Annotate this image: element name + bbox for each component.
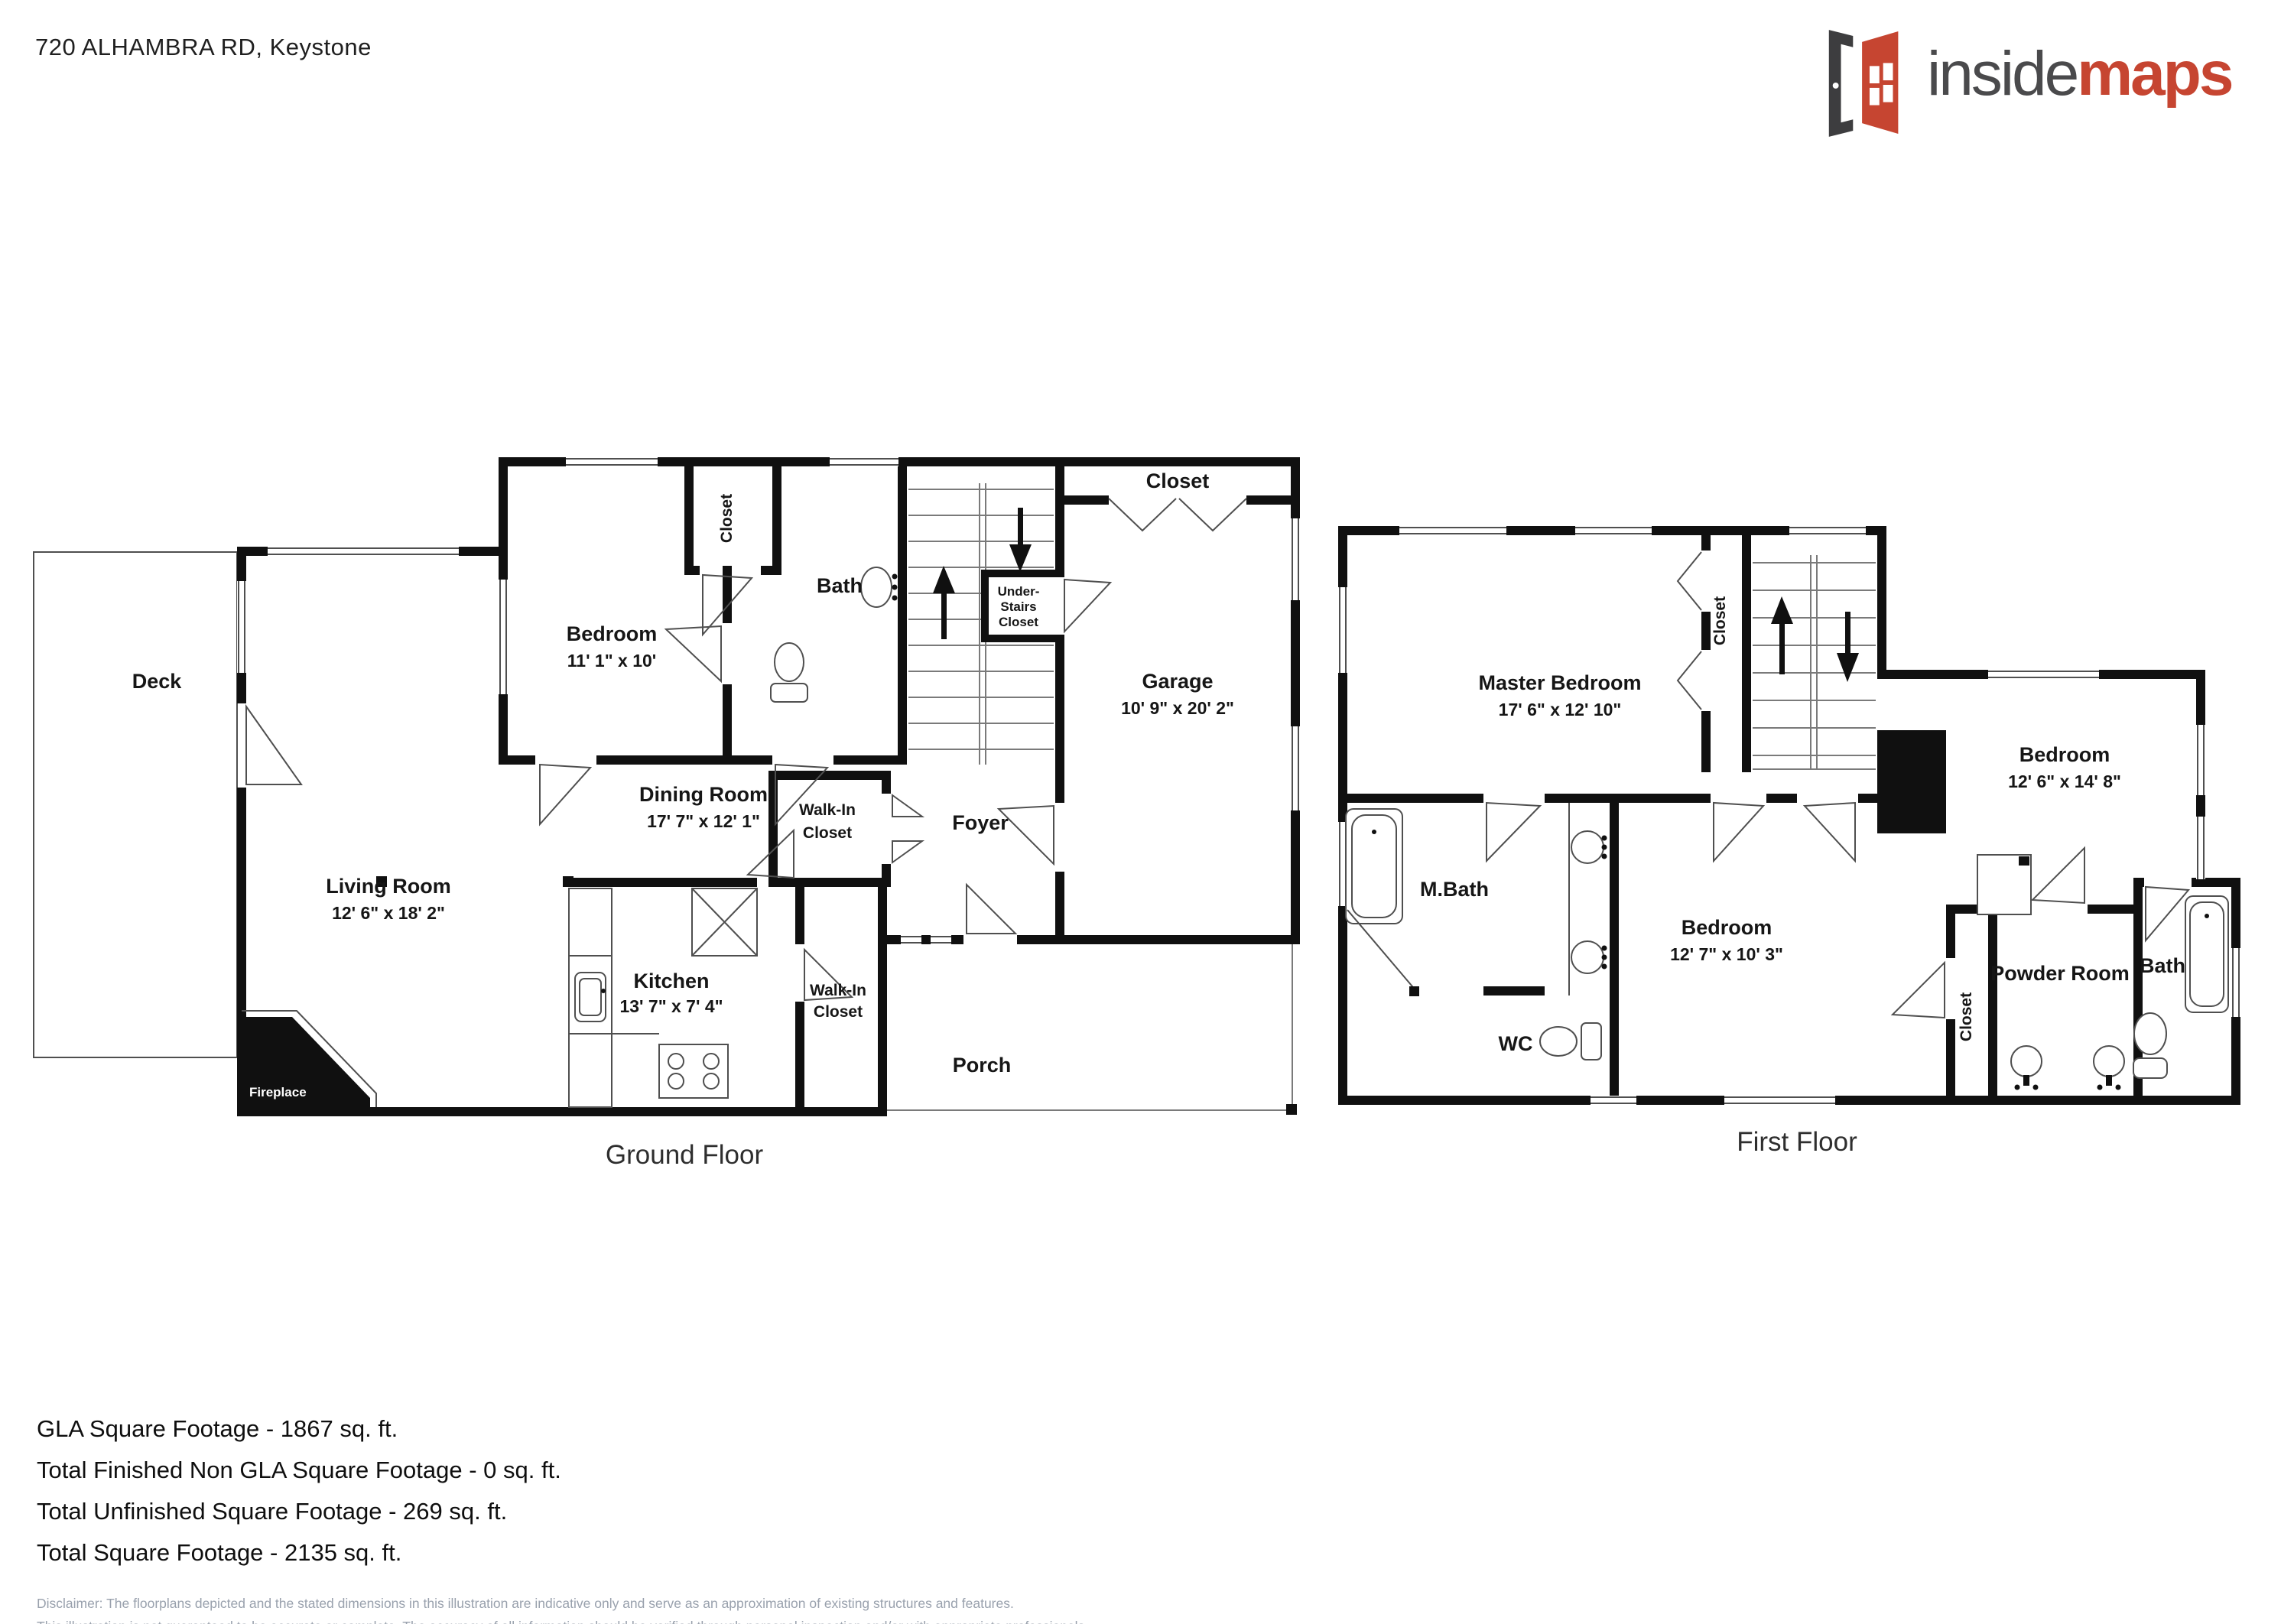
powder-room-label: Powder Room bbox=[1990, 962, 2130, 985]
stairs-up-arrow-first bbox=[1771, 596, 1793, 674]
closet-mid-label: Closet bbox=[1958, 992, 1975, 1041]
walk-in-closet-lower-line1: Walk-In bbox=[810, 982, 866, 999]
mbath-label: M.Bath bbox=[1420, 878, 1489, 901]
first-floor-plan: Master Bedroom 17' 6" x 12' 10" Closet B… bbox=[1331, 520, 2256, 1170]
disclaimer-line2: This illustration is not guaranteed to b… bbox=[37, 1615, 1088, 1624]
wc-toilet-icon bbox=[1540, 1023, 1601, 1060]
toilet-icon bbox=[771, 643, 807, 702]
dining-room-label: Dining Room bbox=[639, 783, 768, 806]
stairs-down-arrow-first bbox=[1837, 612, 1859, 682]
non-gla-square-footage: Total Finished Non GLA Square Footage - … bbox=[37, 1450, 561, 1491]
bath-sink-icon bbox=[861, 567, 898, 607]
bedroom-right-dims: 12' 6" x 14' 8" bbox=[2008, 771, 2121, 791]
mbath-vanity-sinks bbox=[1569, 803, 1607, 996]
bath-first-label: Bath bbox=[2140, 954, 2185, 977]
porch-label: Porch bbox=[953, 1054, 1012, 1077]
mbath-tub-icon bbox=[1346, 809, 1402, 924]
bedroom-right-label: Bedroom bbox=[2019, 743, 2110, 766]
walk-in-closet-lower-line2: Closet bbox=[814, 1003, 863, 1021]
deck-label: Deck bbox=[132, 670, 183, 693]
square-footage-summary: GLA Square Footage - 1867 sq. ft. Total … bbox=[37, 1408, 561, 1574]
powder-sinks-icon bbox=[2011, 1046, 2124, 1090]
logo-wordmark: insidemaps bbox=[1927, 43, 2231, 106]
linen-cabinet-icon bbox=[1977, 855, 2031, 914]
bedroom-label: Bedroom bbox=[567, 622, 658, 645]
ground-floor-plan: Deck Bedroom 11' 1" x 10' Closet Bath Un… bbox=[23, 447, 1323, 1200]
master-bedroom-dims: 17' 6" x 12' 10" bbox=[1499, 700, 1622, 719]
total-square-footage: Total Square Footage - 2135 sq. ft. bbox=[37, 1532, 561, 1574]
ground-floor-title: Ground Floor bbox=[606, 1140, 764, 1170]
kitchen-dims: 13' 7" x 7' 4" bbox=[619, 996, 723, 1016]
kitchen-label: Kitchen bbox=[633, 970, 709, 992]
garage-closet-label: Closet bbox=[1146, 469, 1210, 492]
bath-label: Bath bbox=[817, 574, 863, 597]
logo-inside-text: inside bbox=[1927, 39, 2077, 109]
living-room-label: Living Room bbox=[326, 875, 451, 898]
fireplace-label: Fireplace bbox=[249, 1085, 307, 1099]
bath-tub-icon bbox=[2185, 896, 2228, 1012]
living-room-dims: 12' 6" x 18' 2" bbox=[332, 903, 445, 923]
floorplan-page: 720 ALHAMBRA RD, Keystone insidemaps bbox=[0, 0, 2294, 1624]
bedroom-mid-label: Bedroom bbox=[1682, 916, 1772, 939]
master-bedroom-label: Master Bedroom bbox=[1478, 671, 1641, 694]
disclaimer: Disclaimer: The floorplans depicted and … bbox=[37, 1592, 1088, 1624]
gla-square-footage: GLA Square Footage - 1867 sq. ft. bbox=[37, 1408, 561, 1450]
ground-walls bbox=[237, 457, 1300, 1116]
bath-toilet-icon bbox=[2133, 1013, 2167, 1078]
pantry-cabinet-icon bbox=[692, 888, 757, 956]
door-icon bbox=[1818, 26, 1916, 141]
under-stairs-closet-line3: Closet bbox=[999, 615, 1038, 629]
porch-outline bbox=[887, 944, 1297, 1115]
insidemaps-logo: insidemaps bbox=[1818, 26, 2231, 141]
first-floor-title: First Floor bbox=[1737, 1127, 1857, 1157]
staircase-first bbox=[1753, 555, 1876, 769]
foyer-label: Foyer bbox=[952, 811, 1009, 834]
walk-in-closet-upper-line1: Walk-In bbox=[799, 801, 856, 819]
garage-dims: 10' 9" x 20' 2" bbox=[1121, 698, 1234, 718]
under-stairs-closet-line1: Under- bbox=[998, 584, 1040, 599]
stove-icon bbox=[659, 1044, 728, 1098]
kitchen-sink-icon bbox=[575, 973, 606, 1021]
deck-outline bbox=[34, 552, 237, 1057]
first-walls bbox=[1338, 526, 2240, 1105]
stairs-closet-label: Closet bbox=[1711, 596, 1729, 645]
property-address: 720 ALHAMBRA RD, Keystone bbox=[35, 34, 372, 61]
disclaimer-line1: Disclaimer: The floorplans depicted and … bbox=[37, 1592, 1088, 1615]
stairs-up-arrow bbox=[933, 566, 955, 639]
first-windows bbox=[1338, 526, 2240, 1105]
dining-room-dims: 17' 7" x 12' 1" bbox=[647, 811, 760, 831]
unfinished-square-footage: Total Unfinished Square Footage - 269 sq… bbox=[37, 1491, 561, 1532]
garage-label: Garage bbox=[1142, 670, 1213, 693]
wc-label: WC bbox=[1499, 1032, 1533, 1055]
logo-maps-text: maps bbox=[2077, 39, 2231, 109]
bedroom-mid-dims: 12' 7" x 10' 3" bbox=[1670, 944, 1783, 964]
under-stairs-closet-line2: Stairs bbox=[1000, 599, 1036, 614]
bedroom-closet-label: Closet bbox=[718, 494, 736, 543]
stairs-down-arrow bbox=[1009, 508, 1032, 572]
bedroom-dims: 11' 1" x 10' bbox=[567, 651, 657, 671]
walk-in-closet-upper-line2: Closet bbox=[803, 824, 852, 842]
